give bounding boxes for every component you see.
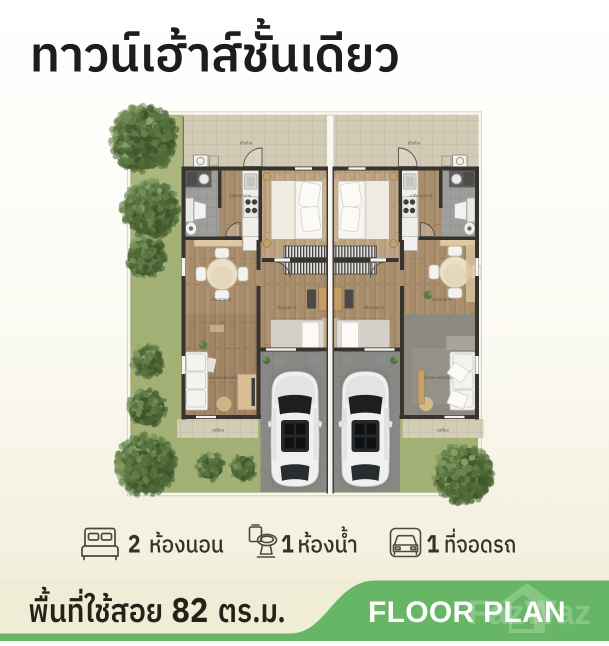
svg-text:FazWaz: FazWaz <box>468 594 591 632</box>
svg-text:FazWaz: FazWaz <box>500 480 609 513</box>
